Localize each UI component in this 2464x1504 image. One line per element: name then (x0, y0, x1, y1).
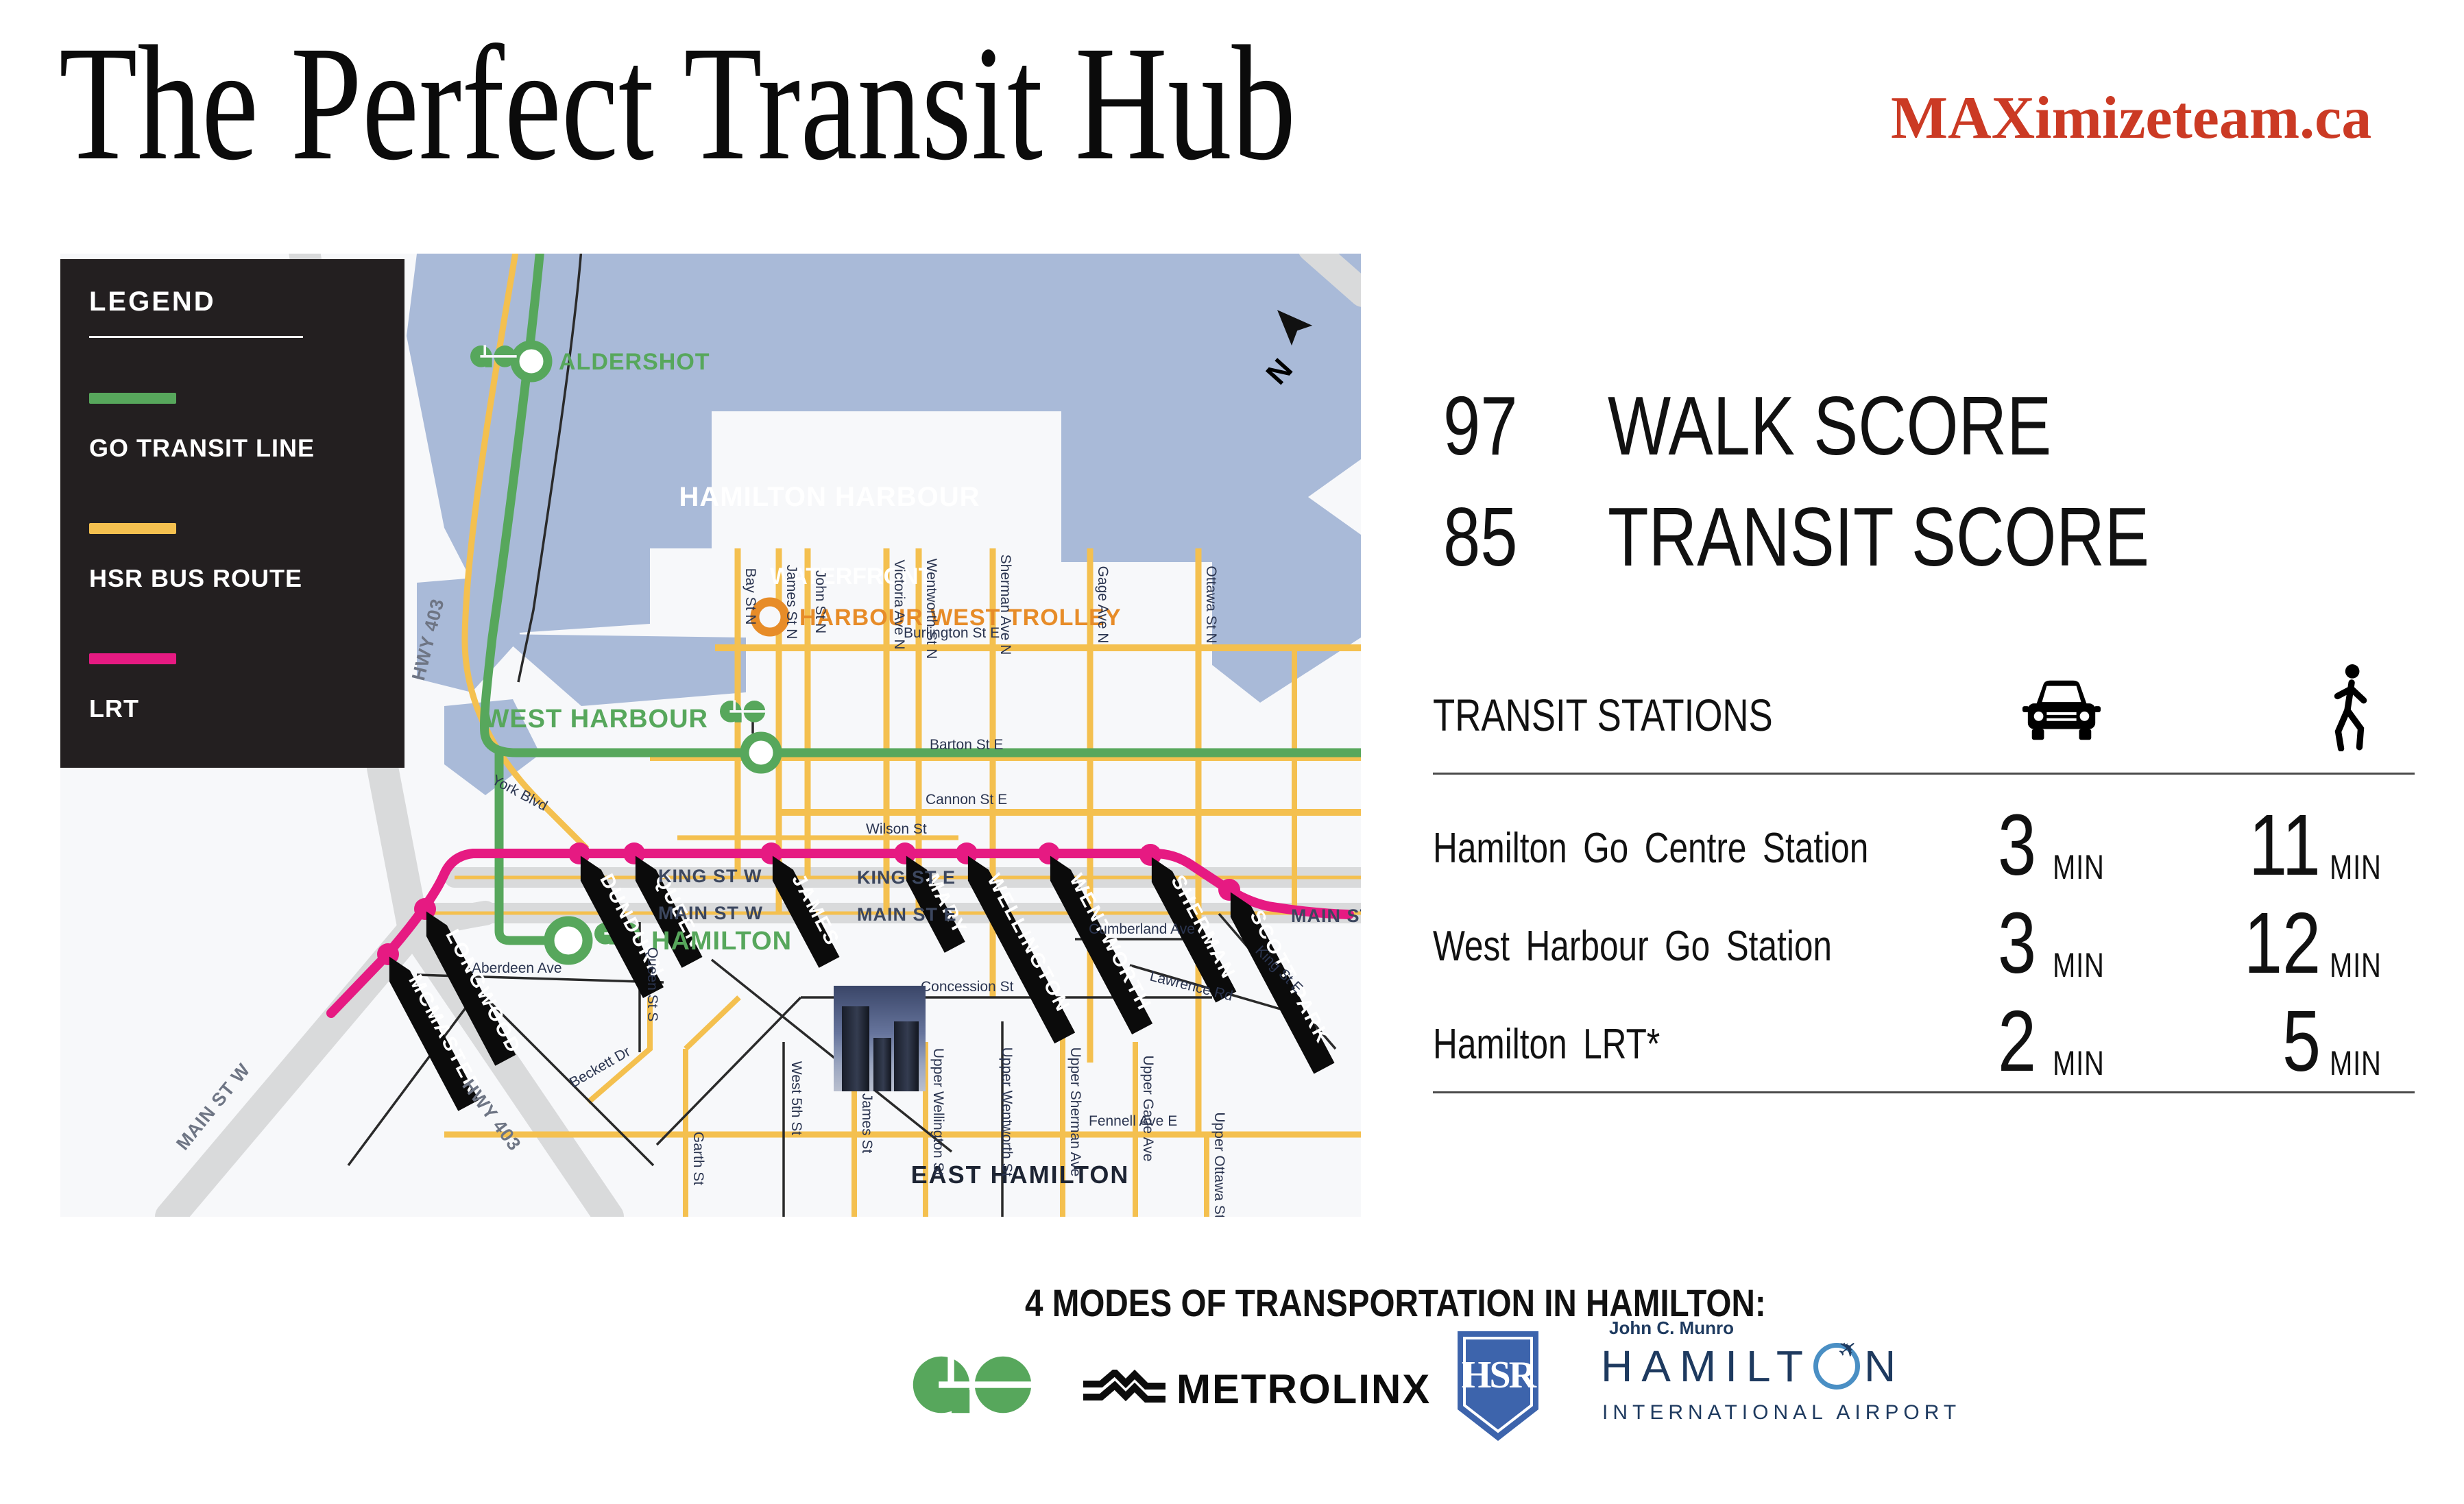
table-row: West Harbour Go Station 3 MIN 12 MIN (0, 900, 2464, 996)
car-icon (2021, 675, 2102, 747)
go-station-circle (515, 345, 548, 378)
table-rule-top (1433, 773, 2415, 775)
airport-logo-sub-text: INTERNATIONAL AIRPORT (1602, 1401, 1961, 1424)
walk-score-row: 97 WALK SCORE (0, 384, 2464, 494)
minutes-unit: MIN (2053, 847, 2105, 887)
go-transit-logo-footer (910, 1354, 1034, 1419)
legend-item-lrt: LRT (89, 694, 139, 723)
lrt-swatch (89, 653, 176, 664)
minutes-unit: MIN (2330, 945, 2382, 985)
walk-score-value: 97 (1443, 384, 1518, 468)
minutes-unit: MIN (2330, 1043, 2382, 1083)
minutes-unit: MIN (2053, 945, 2105, 985)
table-rule-bottom (1433, 1091, 2415, 1093)
go-station-circle (745, 736, 777, 769)
drive-minutes: 2 (1998, 998, 2036, 1084)
minutes-unit: MIN (2053, 1043, 2105, 1083)
map-label: Upper Ottawa St (1211, 1112, 1227, 1217)
airport-logo-name: HAMILT✈N (1601, 1341, 1905, 1392)
harbour-west-trolley-stop (755, 602, 785, 632)
page-title: The Perfect Transit Hub (59, 21, 1296, 185)
minutes-unit: MIN (2330, 847, 2382, 887)
svg-text:HSR: HSR (1462, 1354, 1537, 1396)
drive-minutes: 3 (1998, 900, 2036, 986)
walk-minutes: 11 (2249, 802, 2321, 888)
website-link[interactable]: MAXimizeteam.ca (1891, 84, 2371, 153)
metrolinx-logo: METROLINX (1176, 1366, 1431, 1413)
map-label: WEST HARBOUR (484, 705, 708, 733)
map-label: ALDERSHOT (559, 349, 710, 375)
station-name: West Harbour Go Station (1433, 922, 1832, 971)
table-row: Hamilton Go Centre Station 3 MIN 11 MIN (0, 802, 2464, 898)
airport-o-icon: ✈ (1813, 1343, 1860, 1390)
walk-minutes: 12 (2244, 900, 2321, 986)
map-label: Garth St (690, 1132, 706, 1185)
map-label: Burlington St E (904, 625, 1000, 641)
airport-logo-small-text: John C. Munro (1609, 1318, 1734, 1339)
transit-score-row: 85 TRANSIT SCORE (0, 495, 2464, 605)
metrolinx-icon (1082, 1370, 1168, 1418)
drive-minutes: 3 (1998, 802, 2036, 888)
map-label: Barton St E (930, 737, 1003, 753)
legend-divider (89, 336, 303, 338)
station-name: Hamilton LRT* (1433, 1020, 1660, 1069)
walk-score-label: WALK SCORE (1608, 384, 2051, 468)
walk-minutes: 5 (2282, 998, 2321, 1084)
transit-score-value: 85 (1443, 495, 1518, 579)
transit-stations-heading: TRANSIT STATIONS (1433, 689, 1858, 741)
transit-score-label: TRANSIT SCORE (1608, 495, 2149, 579)
page: { "page": {"title": "The Perfect Transit… (0, 0, 2464, 1504)
table-row: Hamilton LRT* 2 MIN 5 MIN (0, 998, 2464, 1094)
walk-icon (2328, 664, 2371, 755)
hsr-logo: HSR (1453, 1329, 1543, 1453)
legend-title: LEGEND (89, 287, 216, 317)
map-label: Fennell Ave E (1089, 1113, 1177, 1129)
station-name: Hamilton Go Centre Station (1433, 824, 1868, 873)
